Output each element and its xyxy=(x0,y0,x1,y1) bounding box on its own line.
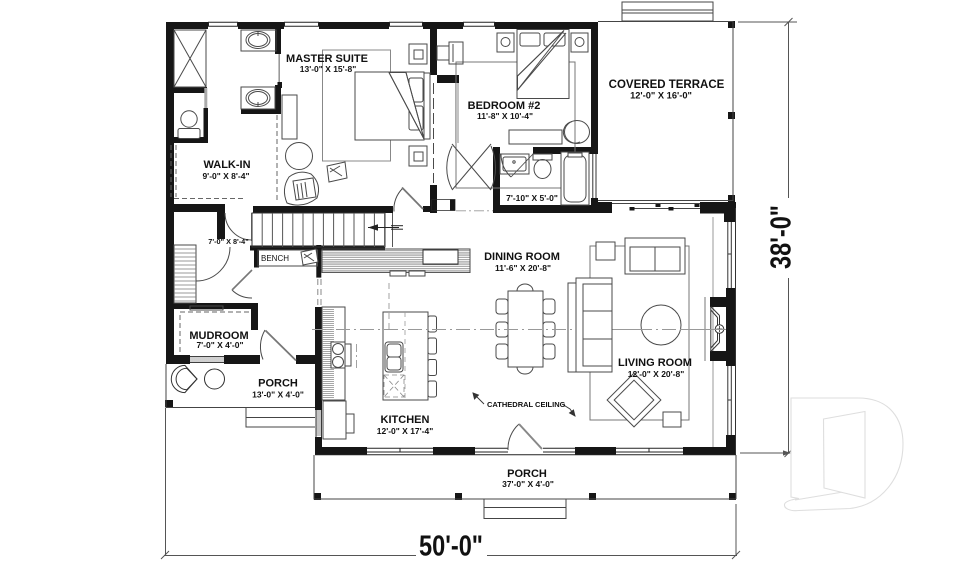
svg-text:13'-0" X 15'-8": 13'-0" X 15'-8" xyxy=(300,64,357,74)
svg-text:PORCH: PORCH xyxy=(258,378,298,390)
svg-text:KITCHEN: KITCHEN xyxy=(381,414,430,426)
svg-text:7'-10" X 5'-0": 7'-10" X 5'-0" xyxy=(506,193,558,203)
svg-text:DINING ROOM: DINING ROOM xyxy=(484,251,560,263)
svg-text:9'-0" X 8'-4": 9'-0" X 8'-4" xyxy=(202,171,249,181)
svg-text:11'-6" X 20'-8": 11'-6" X 20'-8" xyxy=(495,263,551,273)
svg-text:50'-0": 50'-0" xyxy=(419,531,483,563)
svg-text:CATHEDRAL CEILING: CATHEDRAL CEILING xyxy=(487,400,566,409)
svg-text:WALK-IN: WALK-IN xyxy=(203,159,250,171)
svg-text:38'-0": 38'-0" xyxy=(766,205,798,269)
svg-text:13'-0" X 4'-0": 13'-0" X 4'-0" xyxy=(252,390,304,400)
svg-text:BENCH: BENCH xyxy=(261,254,289,263)
svg-text:37'-0" X 4'-0": 37'-0" X 4'-0" xyxy=(502,479,554,489)
svg-text:7'-0" X 4'-0": 7'-0" X 4'-0" xyxy=(196,340,243,350)
svg-text:12'-0" X 17'-4": 12'-0" X 17'-4" xyxy=(377,426,434,436)
svg-text:LIVING ROOM: LIVING ROOM xyxy=(618,357,692,369)
svg-text:12'-0" X 20'-8": 12'-0" X 20'-8" xyxy=(628,369,685,379)
svg-text:COVERED TERRACE: COVERED TERRACE xyxy=(609,79,725,91)
svg-text:12'-0" X 16'-0": 12'-0" X 16'-0" xyxy=(630,91,692,101)
svg-text:7'-0" X 8'-4": 7'-0" X 8'-4" xyxy=(208,237,248,246)
svg-text:11'-8" X 10'-4": 11'-8" X 10'-4" xyxy=(477,111,533,121)
